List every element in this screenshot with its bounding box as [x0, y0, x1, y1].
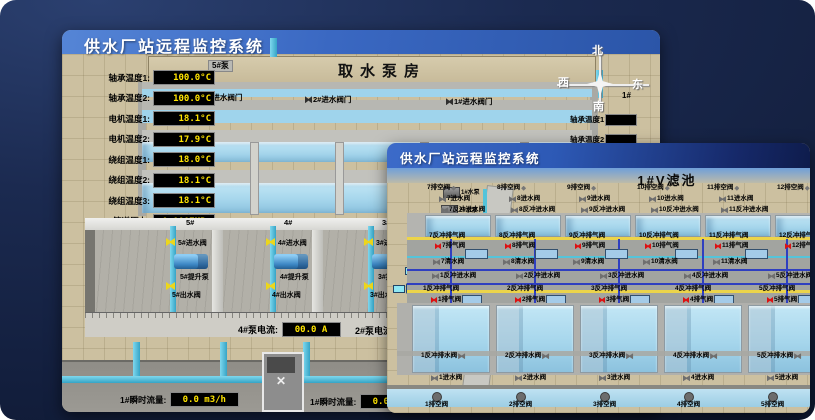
- pump-panel-row: 轴承温度2: 100.0°C: [80, 91, 215, 106]
- backwash-inlet-valve-unit[interactable]: 2反冲进水阀: [516, 273, 560, 280]
- valve-label: 7进水阀: [447, 196, 470, 203]
- valve-label: 10反冲排气阀: [639, 233, 679, 240]
- gallery-pipe-blue: [407, 269, 810, 271]
- flow-meter-screen: [267, 357, 295, 373]
- inlet-valve-icon[interactable]: [649, 196, 656, 202]
- pump-panel-row: 轴承温度1: 100.0°C: [80, 70, 215, 85]
- intake-valve-label: 2#进水阀门: [313, 96, 351, 104]
- valve-label: 4排空阀: [677, 402, 700, 409]
- side-readout: 轴承温度1: [570, 114, 637, 126]
- valve-label: 8排空阀: [497, 185, 520, 192]
- compass-north: 北: [592, 42, 603, 58]
- clean-water-valve-icon[interactable]: [643, 259, 650, 265]
- inlet-valve-icon[interactable]: [431, 375, 438, 381]
- pump-bay: 5#进水阀 5#提升泵 5#出水阀: [120, 226, 216, 312]
- valve-label: 1反冲排气阀: [423, 286, 459, 293]
- valve-label: 11反冲排气阀: [709, 233, 748, 240]
- level-display: [465, 249, 488, 259]
- drain-valve-icon[interactable]: [591, 186, 596, 191]
- pipe: [133, 342, 140, 380]
- filter-pool: [748, 305, 810, 373]
- valve-label: 1进水阀: [439, 375, 462, 382]
- flow-left-value: 0.0 m3/h: [170, 392, 239, 407]
- front-window-titlebar[interactable]: 供水厂站远程监控系统: [387, 143, 810, 168]
- valve-label: 5反冲排气阀: [759, 286, 795, 293]
- current-left-label: 4#泵电流:: [238, 323, 278, 336]
- valve-label: 2进水阀: [523, 375, 546, 382]
- valve-label: 4反冲排水阀: [673, 353, 709, 360]
- back-window-titlebar[interactable]: 供水厂站远程监控系统: [62, 30, 660, 54]
- air-valve-unit[interactable]: 8排气阀: [505, 243, 535, 250]
- air-valve-icon[interactable]: [715, 243, 721, 249]
- valve-label: 2反冲进水阀: [524, 273, 560, 280]
- drain-valve-unit[interactable]: 4排空阀: [677, 392, 700, 409]
- pump-panel-label: 绕组温度2:: [80, 174, 150, 186]
- backwash-inlet-valve-unit[interactable]: 3反冲进水阀: [600, 273, 644, 280]
- pump-panel-label: 轴承温度2:: [80, 92, 150, 104]
- drain-valve-unit[interactable]: 3排空阀: [593, 392, 616, 409]
- inlet-valve-icon[interactable]: [509, 196, 516, 202]
- pump-panel-label: 绕组温度1:: [80, 154, 150, 166]
- valve-label: 5反冲排水阀: [757, 353, 793, 360]
- valve-label: 9进水阀: [587, 196, 610, 203]
- pump-panel-value: 18.0°C: [153, 152, 215, 167]
- riser-pipe: [702, 239, 704, 303]
- drain-valve-unit[interactable]: 1排空阀: [425, 392, 448, 409]
- valve-label: 12反冲排气阀: [779, 233, 810, 240]
- side-readout-box: [605, 114, 637, 126]
- filter-pool: [664, 305, 742, 373]
- pump-panel-label: 轴承温度1:: [80, 72, 150, 84]
- pump-panel-label: 绕组温度3:: [80, 195, 150, 207]
- clean-water-valve-unit[interactable]: 8清水阀: [503, 259, 534, 266]
- valve-label: 5进水阀: [775, 375, 798, 382]
- drain-valve-unit[interactable]: 11排空阀: [707, 185, 739, 192]
- backwash-drain-valve-unit[interactable]: 2反冲排水阀: [505, 353, 549, 360]
- pipe: [303, 342, 310, 380]
- pump-panel-row: 绕组温度3: 18.1°C: [80, 193, 215, 208]
- front-window[interactable]: 供水厂站远程监控系统 1#V滤池 1#水泵 2#水泵 3#水泵 1#风机: [387, 143, 810, 413]
- backwash-drain-valve-unit[interactable]: 5反冲排水阀: [757, 353, 801, 360]
- flow-meter[interactable]: ✕: [262, 352, 304, 412]
- valve-label: 3反冲排水阀: [589, 353, 625, 360]
- level-display: [745, 249, 768, 259]
- valve-label: 3进水阀: [607, 375, 630, 382]
- drain-valve-unit[interactable]: 5排空阀: [761, 392, 784, 409]
- valve-label: 12排空阀: [777, 185, 804, 192]
- intake-valve-unit[interactable]: 2#进水阀门: [305, 96, 351, 104]
- clean-water-valve-unit[interactable]: 9清水阀: [573, 259, 604, 266]
- valve-label: 7排气阀: [442, 243, 465, 250]
- valve-label: 7清水阀: [441, 259, 464, 266]
- desktop-background: 供水厂站远程监控系统 取水泵房 3#进水阀门 2#进水阀门: [0, 0, 815, 420]
- valve-label: 2反冲排水阀: [505, 353, 541, 360]
- intake-valve-icon[interactable]: [305, 96, 312, 103]
- inlet-valve-unit[interactable]: 7进水阀: [439, 196, 470, 203]
- compass-west: 西: [558, 74, 569, 90]
- backwash-drain-valve-icon[interactable]: [626, 353, 633, 359]
- drain-valve-icon[interactable]: [665, 186, 670, 191]
- backwash-inlet-valve-icon[interactable]: [432, 273, 439, 279]
- pump-panel-value: 100.0°C: [153, 70, 215, 85]
- inlet-valve-unit[interactable]: 2进水阀: [515, 375, 546, 382]
- side-panel-header: 1#: [622, 92, 631, 100]
- air-valve-unit[interactable]: 11排气阀: [715, 243, 748, 250]
- inlet-valve-unit[interactable]: 11进水阀: [719, 196, 753, 203]
- filter-pool: [580, 305, 658, 373]
- pump-panel-row: 电机温度1: 18.1°C: [80, 111, 215, 126]
- inlet-valve-unit[interactable]: 9进水阀: [579, 196, 610, 203]
- outlet-valve-label: 5#出水阀: [172, 292, 201, 299]
- air-valve-icon[interactable]: [645, 243, 651, 249]
- air-valve-icon[interactable]: [575, 243, 581, 249]
- valve-label: 1排空阀: [425, 402, 448, 409]
- flow-meter-icon: ✕: [264, 374, 298, 388]
- pipe: [220, 342, 227, 380]
- valve-label: 3排空阀: [593, 402, 616, 409]
- drain-valve-unit[interactable]: 7排空阀: [427, 185, 456, 192]
- flow-right-label: 1#瞬时流量:: [310, 396, 356, 408]
- intake-valve-icon[interactable]: [446, 98, 453, 105]
- valve-label: 2排空阀: [509, 402, 532, 409]
- level-display: [675, 249, 698, 259]
- backwash-drain-valve-unit[interactable]: 3反冲排水阀: [589, 353, 633, 360]
- gallery-pipe-yellow: [407, 237, 810, 240]
- pump-panel-value: 100.0°C: [153, 91, 215, 106]
- drain-valve-unit[interactable]: 10排空阀: [637, 185, 670, 192]
- valve-label: 7排空阀: [427, 185, 450, 192]
- air-valve-icon[interactable]: [785, 243, 791, 249]
- flow-readout-left: 1#瞬时流量: 0.0 m3/h: [120, 392, 239, 407]
- compass-east: 东: [632, 76, 643, 92]
- intake-valve-unit[interactable]: 1#进水阀门: [446, 98, 492, 106]
- pump-panel-label: 电机温度2:: [80, 133, 150, 145]
- drain-valve-unit[interactable]: 12排空阀: [777, 185, 810, 192]
- drain-valve-unit[interactable]: 9排空阀: [567, 185, 596, 192]
- backwash-inlet-valve-icon[interactable]: [684, 273, 691, 279]
- valve-label: 3反冲进水阀: [608, 273, 644, 280]
- valve-label: 10进水阀: [657, 196, 684, 203]
- clean-water-valve-unit[interactable]: 10清水阀: [643, 259, 678, 266]
- inlet-valve-icon[interactable]: [683, 375, 690, 381]
- inlet-valve-unit[interactable]: 10进水阀: [649, 196, 684, 203]
- pool-divider: [335, 142, 344, 215]
- clean-water-valve-icon[interactable]: [713, 259, 720, 265]
- clean-water-valve-icon[interactable]: [573, 259, 580, 265]
- valve-label: 11清水阀: [721, 259, 747, 266]
- air-valve-icon[interactable]: [435, 243, 441, 249]
- valve-label: 8清水阀: [511, 259, 534, 266]
- pump-panel-row: 绕组温度1: 18.0°C: [80, 152, 215, 167]
- valve-label: 2反冲排气阀: [507, 286, 543, 293]
- pump-panel-value: 18.1°C: [153, 193, 215, 208]
- valve-label: 1反冲排水阀: [421, 353, 457, 360]
- valve-label: 5反冲进水阀: [776, 273, 810, 280]
- backwash-drain-valve-icon[interactable]: [794, 353, 801, 359]
- valve-label: 10排空阀: [637, 185, 664, 192]
- valve-label: 8排气阀: [512, 243, 535, 250]
- backwash-inlet-valve-unit[interactable]: 4反冲进水阀: [684, 273, 728, 280]
- inlet-valve-icon[interactable]: [515, 375, 522, 381]
- air-valve-unit[interactable]: 9排气阀: [575, 243, 605, 250]
- valve-label: 1反冲进水阀: [440, 273, 476, 280]
- drain-valve-icon[interactable]: [805, 186, 810, 191]
- pool-divider: [250, 142, 259, 215]
- air-valve-unit[interactable]: 7排气阀: [435, 243, 465, 250]
- air-valve-icon[interactable]: [505, 243, 511, 249]
- pump-panel-value: 18.1°C: [153, 111, 215, 126]
- valve-label: 9反冲排气阀: [569, 233, 605, 240]
- pump-pipe: [270, 226, 276, 312]
- pump-label: 4#提升泵: [280, 274, 309, 281]
- clean-water-valve-unit[interactable]: 7清水阀: [433, 259, 464, 266]
- clean-water-valve-unit[interactable]: 11清水阀: [713, 259, 747, 266]
- inlet-valve-unit[interactable]: 5进水阀: [767, 375, 798, 382]
- outlet-valve-label: 4#出水阀: [272, 292, 301, 299]
- drain-valve-icon[interactable]: [521, 186, 526, 191]
- valve-label: 9排空阀: [567, 185, 590, 192]
- pump-icon[interactable]: [174, 254, 208, 269]
- inlet-valve-label: 4#进水阀: [278, 240, 307, 247]
- backwash-inlet-valve-icon[interactable]: [768, 273, 775, 279]
- pump-panel-label: 电机温度1:: [80, 113, 150, 125]
- valve-label: 7反冲排气阀: [429, 233, 465, 240]
- scene-title: 取水泵房: [292, 60, 472, 81]
- valve-label: 4反冲排气阀: [675, 286, 711, 293]
- inlet-valve-unit[interactable]: 8进水阀: [509, 196, 540, 203]
- clean-water-valve-icon[interactable]: [433, 259, 440, 265]
- current-readout-left: 4#泵电流: 00.0 A: [238, 322, 341, 337]
- flow-left-label: 1#瞬时流量:: [120, 394, 166, 406]
- air-valve-unit[interactable]: 10排气阀: [645, 243, 679, 250]
- inlet-valve-icon[interactable]: [599, 375, 606, 381]
- front-window-title: 供水厂站远程监控系统: [400, 152, 540, 166]
- backwash-drain-valve-unit[interactable]: 1反冲排水阀: [421, 353, 465, 360]
- level-display: [605, 249, 628, 259]
- pump-room-wall: [85, 230, 95, 312]
- clean-water-valve-icon[interactable]: [503, 259, 510, 265]
- pump-pipe: [170, 226, 176, 312]
- pump-panel-value: 17.9°C: [153, 132, 215, 147]
- filter-pool: [412, 305, 490, 373]
- backwash-inlet-valve-unit[interactable]: 1反冲进水阀: [432, 273, 476, 280]
- backwash-inlet-valve-icon[interactable]: [600, 273, 607, 279]
- backwash-inlet-valve-icon[interactable]: [516, 273, 523, 279]
- back-window-title: 供水厂站远程监控系统: [84, 39, 264, 56]
- pump-label: 5#提升泵: [180, 274, 209, 281]
- drain-valve-icon[interactable]: [734, 186, 739, 191]
- inlet-valve-icon[interactable]: [719, 196, 726, 202]
- backwash-inlet-valve-unit[interactable]: 5反冲进水阀: [768, 273, 810, 280]
- drain-valve-unit[interactable]: 8排空阀: [497, 185, 526, 192]
- valve-label: 11排空阀: [707, 185, 733, 192]
- drain-valve-unit[interactable]: 2排空阀: [509, 392, 532, 409]
- pump-panel-row: 绕组温度2: 18.1°C: [80, 173, 215, 188]
- pump-pipe: [368, 226, 374, 312]
- backwash-drain-valve-icon[interactable]: [710, 353, 717, 359]
- intake-valve-label: 1#进水阀门: [454, 98, 492, 106]
- valve-label: 10清水阀: [651, 259, 678, 266]
- inlet-valve-unit[interactable]: 3进水阀: [599, 375, 630, 382]
- backwash-drain-valve-icon[interactable]: [458, 353, 465, 359]
- pump-panel-row: 电机温度2: 17.9°C: [80, 132, 215, 147]
- inlet-valve-unit[interactable]: 1进水阀: [431, 375, 462, 382]
- pump-panel-value: 18.1°C: [153, 173, 215, 188]
- inlet-valve-icon[interactable]: [767, 375, 774, 381]
- inlet-valve-unit[interactable]: 4进水阀: [683, 375, 714, 382]
- valve-label: 8进水阀: [517, 196, 540, 203]
- inlet-valve-icon[interactable]: [579, 196, 586, 202]
- pump-icon[interactable]: [274, 254, 308, 269]
- blower-display: [393, 285, 405, 293]
- backwash-drain-valve-unit[interactable]: 4反冲排水阀: [673, 353, 717, 360]
- pump-bay: 4#进水阀 4#提升泵 4#出水阀: [220, 226, 316, 312]
- valve-label: 3反冲排气阀: [591, 286, 627, 293]
- valve-label: 12排气阀: [792, 243, 810, 250]
- backwash-drain-valve-icon[interactable]: [542, 353, 549, 359]
- drain-valve-icon[interactable]: [451, 186, 456, 191]
- valve-label: 11进水阀: [727, 196, 753, 203]
- compass-south: 南: [593, 98, 604, 114]
- valve-label: 9排气阀: [582, 243, 605, 250]
- filter-pool: [496, 305, 574, 373]
- inlet-valve-icon[interactable]: [439, 196, 446, 202]
- inlet-valve-label: 5#进水阀: [178, 240, 207, 247]
- level-display: [535, 249, 558, 259]
- valve-label: 5排空阀: [761, 402, 784, 409]
- valve-label: 8反冲排气阀: [499, 233, 535, 240]
- valve-label: 4反冲进水阀: [692, 273, 728, 280]
- valve-label: 4进水阀: [691, 375, 714, 382]
- pipe: [270, 38, 277, 57]
- air-valve-unit[interactable]: 12排气阀: [785, 243, 810, 250]
- current-left-value: 00.0 A: [282, 322, 341, 337]
- valve-label: 9清水阀: [581, 259, 604, 266]
- side-readout-label: 轴承温度1: [570, 116, 604, 124]
